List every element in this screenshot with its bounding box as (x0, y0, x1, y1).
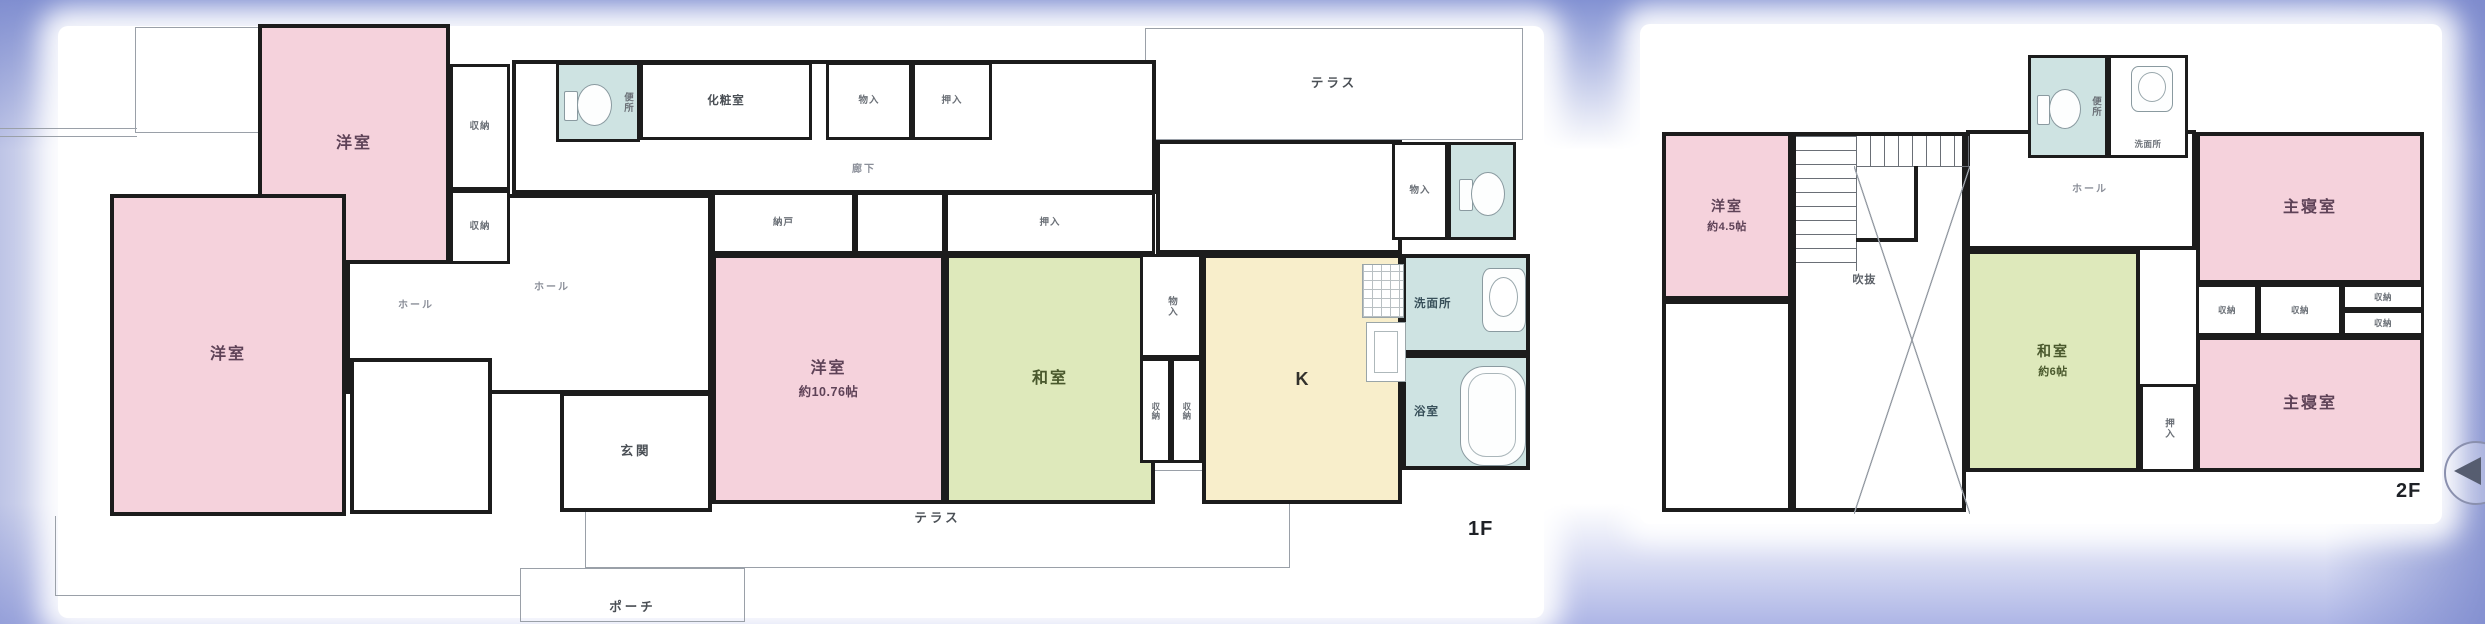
closet-2f-c-label: 収納 (2374, 292, 2392, 303)
room-benjo-1f-b (1448, 142, 1516, 240)
room-room-sw-2f (1662, 300, 1792, 512)
closet-upper-b-label: 収納 (469, 221, 490, 233)
room-shushinshitsu-2: 主寝室 (2196, 336, 2424, 472)
ksink-icon (1366, 322, 1406, 382)
floor-label-1f: 1F (1468, 518, 1493, 541)
room-closet-2f-d: 収納 (2342, 310, 2424, 336)
room-stair-void: 吹抜 (1792, 132, 1966, 512)
room-closet-2f-b: 収納 (2258, 284, 2342, 336)
shuno-mid-a-label: 収納 (1150, 402, 1161, 420)
closet-2f-d-label: 収納 (2374, 318, 2392, 329)
toilet-icon (2037, 86, 2083, 132)
closet-corridor-a-label: 物入 (858, 95, 879, 107)
room-yoshitsu-big: 洋室 (110, 194, 346, 516)
room-closet-mid (855, 192, 945, 254)
room-shushinshitsu-1: 主寝室 (2196, 132, 2424, 284)
stair-void-label: 吹抜 (1852, 274, 1876, 288)
annotation-1f-2: ホール (534, 278, 570, 293)
arrow-left-icon (2454, 457, 2481, 485)
benjo-2f-label: 便所 (2089, 96, 2101, 117)
room-genkan: 玄関 (560, 392, 712, 512)
washitsu-2f-area-label: 約6帖 (2038, 363, 2068, 379)
yoshitsu-big-label: 洋室 (210, 345, 246, 365)
room-nando: 納戸 (712, 192, 855, 254)
floor-label-2f: 2F (2396, 480, 2421, 503)
kitchen-label: K (1296, 368, 1309, 391)
closet-2f-a-label: 収納 (2218, 305, 2236, 316)
monoire-ne-label: 物入 (1409, 185, 1430, 197)
closet-2f-b-label: 収納 (2291, 305, 2309, 316)
floorplan-image: テラスポーチテラス玄関洋室洋室収納収納便所化粧室物入押入納戸押入洋室約10.76… (0, 0, 2485, 624)
porch-label: ポーチ (609, 600, 656, 616)
yoshitsu-45-area-label: 約4.5帖 (1707, 218, 1747, 234)
oshiire-1f-label: 押入 (1039, 217, 1060, 229)
room-monoire-mid: 物入 (1140, 254, 1202, 358)
washitsu-1f-label: 和室 (1032, 369, 1068, 389)
room-washitsu-1f: 和室 (945, 254, 1155, 504)
shuno-mid-b-label: 収納 (1181, 402, 1192, 420)
room-kitchen: K (1202, 254, 1402, 504)
senmenjo-2f-label: 洗面所 (2134, 139, 2161, 150)
room-terrace-top: テラス (1145, 28, 1523, 140)
toilet-icon (1459, 169, 1507, 219)
room-eave-outline-bottom-left (55, 516, 520, 596)
annotation-1f-1: ホール (398, 296, 434, 311)
void-x-icon (1854, 166, 1970, 514)
room-benjo-2f: 便所 (2028, 55, 2108, 158)
shushinshitsu-1-label: 主寝室 (2283, 198, 2337, 218)
benjo-1f-label: 便所 (621, 92, 633, 113)
room-closet-corridor-b: 押入 (912, 62, 992, 140)
room-closet-upper-a: 収納 (450, 64, 510, 190)
room-washitsu-2f: 和室約6帖 (1966, 250, 2140, 472)
room-monoire-ne: 物入 (1392, 142, 1448, 240)
carousel-prev-button[interactable] (2444, 441, 2485, 505)
closet-upper-a-label: 収納 (469, 121, 490, 133)
stairs-v-icon (1856, 136, 1970, 167)
washitsu-2f-label: 和室 (2037, 343, 2069, 361)
room-oshiire-1f: 押入 (945, 192, 1155, 254)
room-senmenjo-1f: 洗面所 (1402, 254, 1530, 354)
stove-icon (1362, 264, 1404, 318)
annotation-1f-0: 廊下 (852, 160, 876, 175)
room-eave-outline-top-left (135, 27, 258, 133)
room-upper-hall-right (1156, 140, 1402, 254)
nando-label: 納戸 (773, 217, 794, 229)
toilet-icon (564, 81, 614, 129)
room-storage-room (350, 358, 492, 514)
room-shuno-mid-a: 収納 (1140, 358, 1171, 463)
room-yoshitsu-45: 洋室約4.5帖 (1662, 132, 1792, 300)
senmenjo-1f-label: 洗面所 (1414, 297, 1452, 311)
closet-corridor-b-label: 押入 (941, 95, 962, 107)
yoshitsu-upper-label: 洋室 (336, 134, 372, 154)
genkan-label: 玄関 (620, 444, 651, 460)
oshiire-2f-label: 押入 (2162, 418, 2174, 439)
room-keshoshitsu: 化粧室 (640, 62, 812, 140)
terrace-top-label: テラス (1311, 76, 1357, 92)
annotation-2f-0: ホール (2072, 180, 2108, 195)
room-closet-2f-a: 収納 (2196, 284, 2258, 336)
sink-icon (1482, 268, 1526, 332)
room-closet-corridor-a: 物入 (826, 62, 912, 140)
room-closet-2f-c: 収納 (2342, 284, 2424, 310)
room-shuno-mid-b: 収納 (1171, 358, 1202, 463)
room-porch: ポーチ (520, 568, 745, 622)
terrace-bottom-label: テラス (914, 511, 960, 527)
yoshitsu-45-label: 洋室 (1711, 198, 1743, 216)
room-oshiire-2f: 押入 (2140, 384, 2196, 472)
yoshitsu-main-area-label: 約10.76帖 (799, 381, 859, 400)
yokushitsu-label: 浴室 (1414, 405, 1439, 419)
monoire-mid-label: 物入 (1165, 296, 1177, 317)
room-yokushitsu: 浴室 (1402, 354, 1530, 470)
room-benjo-1f: 便所 (556, 62, 640, 142)
room-senmenjo-2f: 洗面所 (2108, 55, 2188, 158)
room-yoshitsu-main: 洋室約10.76帖 (712, 254, 945, 504)
shushinshitsu-2-label: 主寝室 (2283, 394, 2337, 414)
room-closet-upper-b: 収納 (450, 190, 510, 264)
sink-icon (2131, 66, 2173, 112)
yoshitsu-main-label: 洋室 (810, 359, 846, 379)
stairs-h-icon (1796, 136, 1857, 271)
room-eave-outline-left (0, 128, 137, 137)
keshoshitsu-label: 化粧室 (707, 94, 745, 108)
tub-icon (1460, 366, 1526, 466)
